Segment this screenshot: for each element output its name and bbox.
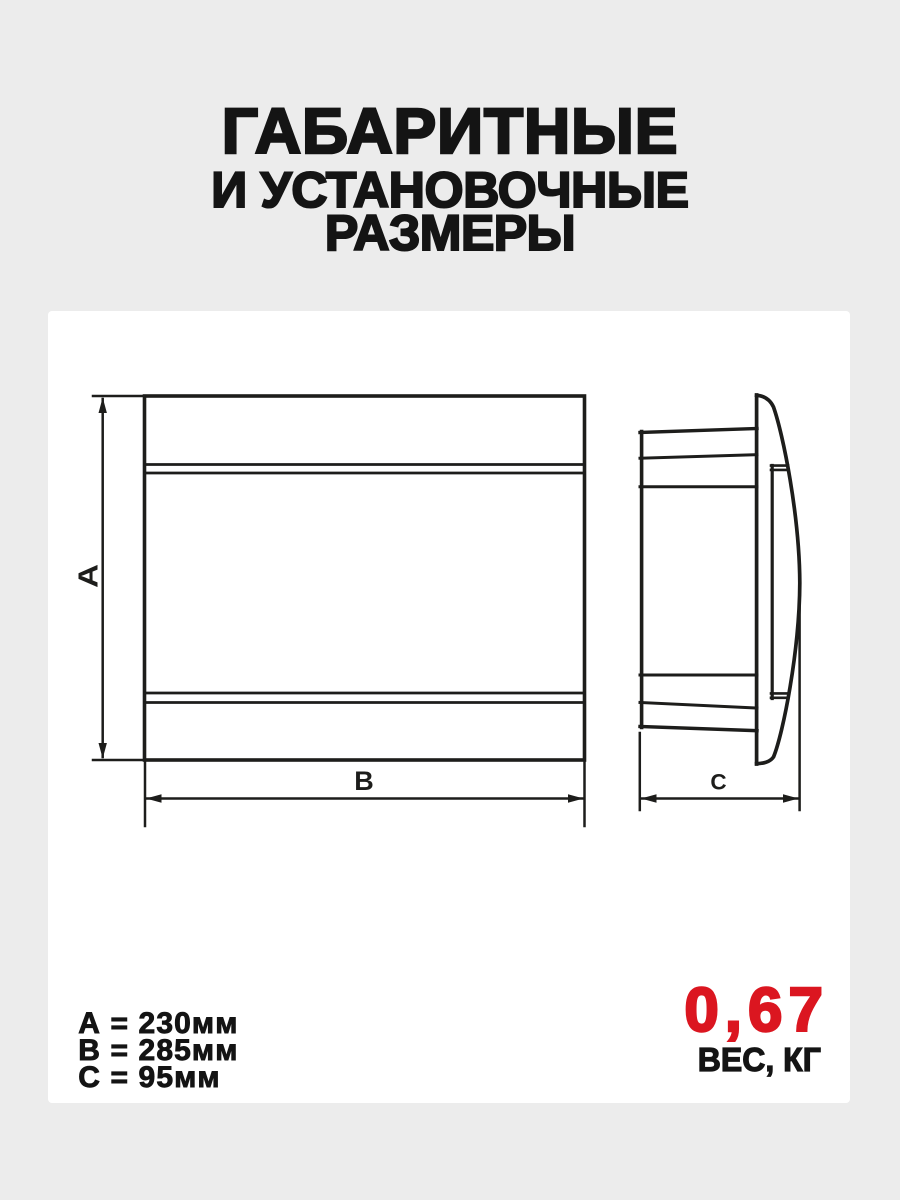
svg-text:С: С [710, 770, 726, 795]
svg-text:В: В [354, 766, 374, 796]
svg-text:А: А [73, 564, 104, 588]
